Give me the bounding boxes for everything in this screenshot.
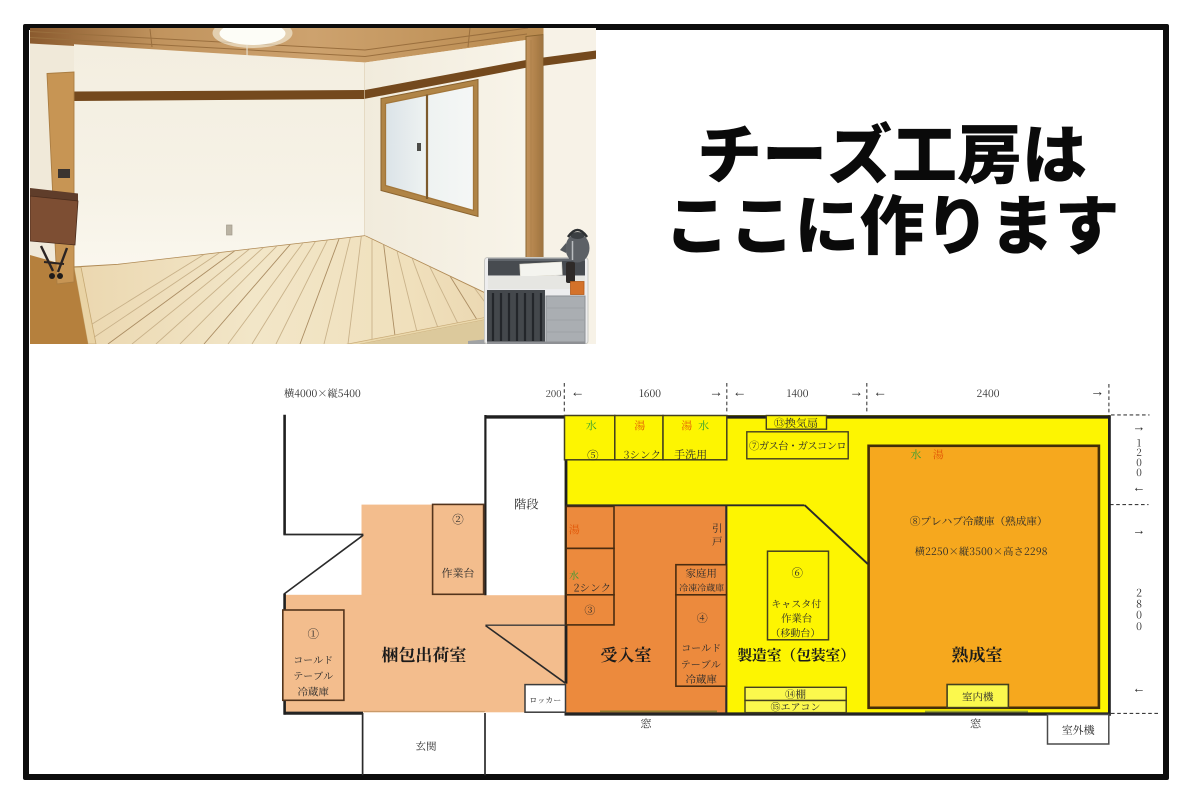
svg-text:1600: 1600	[639, 385, 661, 400]
svg-text:製造室（包装室）: 製造室（包装室）	[737, 645, 855, 666]
svg-text:⑧プレハブ冷蔵庫（熟成庫）: ⑧プレハブ冷蔵庫（熟成庫）	[910, 514, 1048, 529]
svg-text:テーブル: テーブル	[293, 667, 333, 682]
svg-text:作業台: 作業台	[442, 565, 475, 581]
svg-text:水: 水	[586, 418, 597, 434]
svg-text:室外機: 室外機	[1062, 722, 1096, 738]
svg-text:⑬換気扇: ⑬換気扇	[774, 415, 818, 431]
svg-text:梱包出荷室: 梱包出荷室	[381, 641, 466, 666]
svg-text:室内機: 室内機	[962, 690, 994, 705]
svg-text:横2250×縦3500×高さ2298: 横2250×縦3500×高さ2298	[915, 543, 1048, 558]
svg-text:←: ←	[873, 382, 887, 402]
svg-text:玄関: 玄関	[416, 739, 437, 754]
svg-text:④: ④	[697, 610, 708, 626]
svg-text:⑮エアコン: ⑮エアコン	[771, 699, 821, 714]
svg-text:家庭用: 家庭用	[685, 566, 717, 581]
svg-text:テーブル: テーブル	[681, 656, 721, 671]
svg-text:2400: 2400	[977, 385, 1000, 400]
svg-text:200: 200	[546, 386, 562, 400]
svg-text:←: ←	[571, 382, 585, 402]
svg-text:0: 0	[1136, 619, 1142, 634]
svg-text:①: ①	[307, 626, 319, 642]
svg-text:→: →	[1133, 520, 1146, 539]
svg-text:⑤: ⑤	[587, 447, 599, 463]
svg-text:←: ←	[1133, 678, 1146, 697]
svg-text:熟成室: 熟成室	[952, 641, 1003, 666]
svg-text:コールド: コールド	[681, 640, 721, 655]
svg-text:冷蔵庫: 冷蔵庫	[685, 672, 717, 687]
svg-text:冷凍冷蔵庫: 冷凍冷蔵庫	[679, 581, 724, 594]
svg-text:水: 水	[698, 418, 709, 434]
svg-text:（移動台）: （移動台）	[770, 624, 820, 639]
svg-text:→: →	[1133, 416, 1146, 435]
svg-text:⑦ガス台・ガスコンロ: ⑦ガス台・ガスコンロ	[749, 439, 846, 454]
svg-text:階段: 階段	[514, 495, 539, 513]
svg-text:3シンク: 3シンク	[624, 447, 661, 462]
svg-text:湯: 湯	[933, 447, 944, 463]
svg-text:湯: 湯	[569, 522, 580, 538]
svg-text:コールド: コールド	[293, 652, 333, 667]
svg-text:ロッカー: ロッカー	[529, 695, 561, 706]
svg-text:湯: 湯	[681, 418, 692, 434]
svg-text:→: →	[849, 382, 863, 402]
svg-text:手洗用: 手洗用	[674, 446, 707, 462]
svg-text:③: ③	[584, 602, 595, 618]
svg-text:→: →	[709, 382, 723, 402]
svg-text:受入室: 受入室	[601, 641, 652, 666]
svg-text:2シンク: 2シンク	[574, 580, 611, 595]
svg-text:水: 水	[910, 447, 921, 463]
svg-text:窓: 窓	[641, 716, 653, 732]
svg-text:⑥: ⑥	[792, 565, 804, 581]
svg-text:窓: 窓	[970, 716, 982, 732]
svg-text:横4000×縦5400: 横4000×縦5400	[284, 385, 361, 400]
svg-text:湯: 湯	[634, 418, 645, 434]
svg-text:キャスタ付: キャスタ付	[771, 595, 821, 610]
svg-text:←: ←	[733, 382, 747, 402]
svg-text:←: ←	[1133, 477, 1146, 496]
svg-text:②: ②	[452, 512, 464, 528]
svg-text:→: →	[1090, 381, 1104, 401]
svg-text:冷蔵庫: 冷蔵庫	[297, 684, 329, 699]
svg-text:1400: 1400	[786, 385, 808, 400]
svg-text:戸: 戸	[712, 534, 723, 549]
